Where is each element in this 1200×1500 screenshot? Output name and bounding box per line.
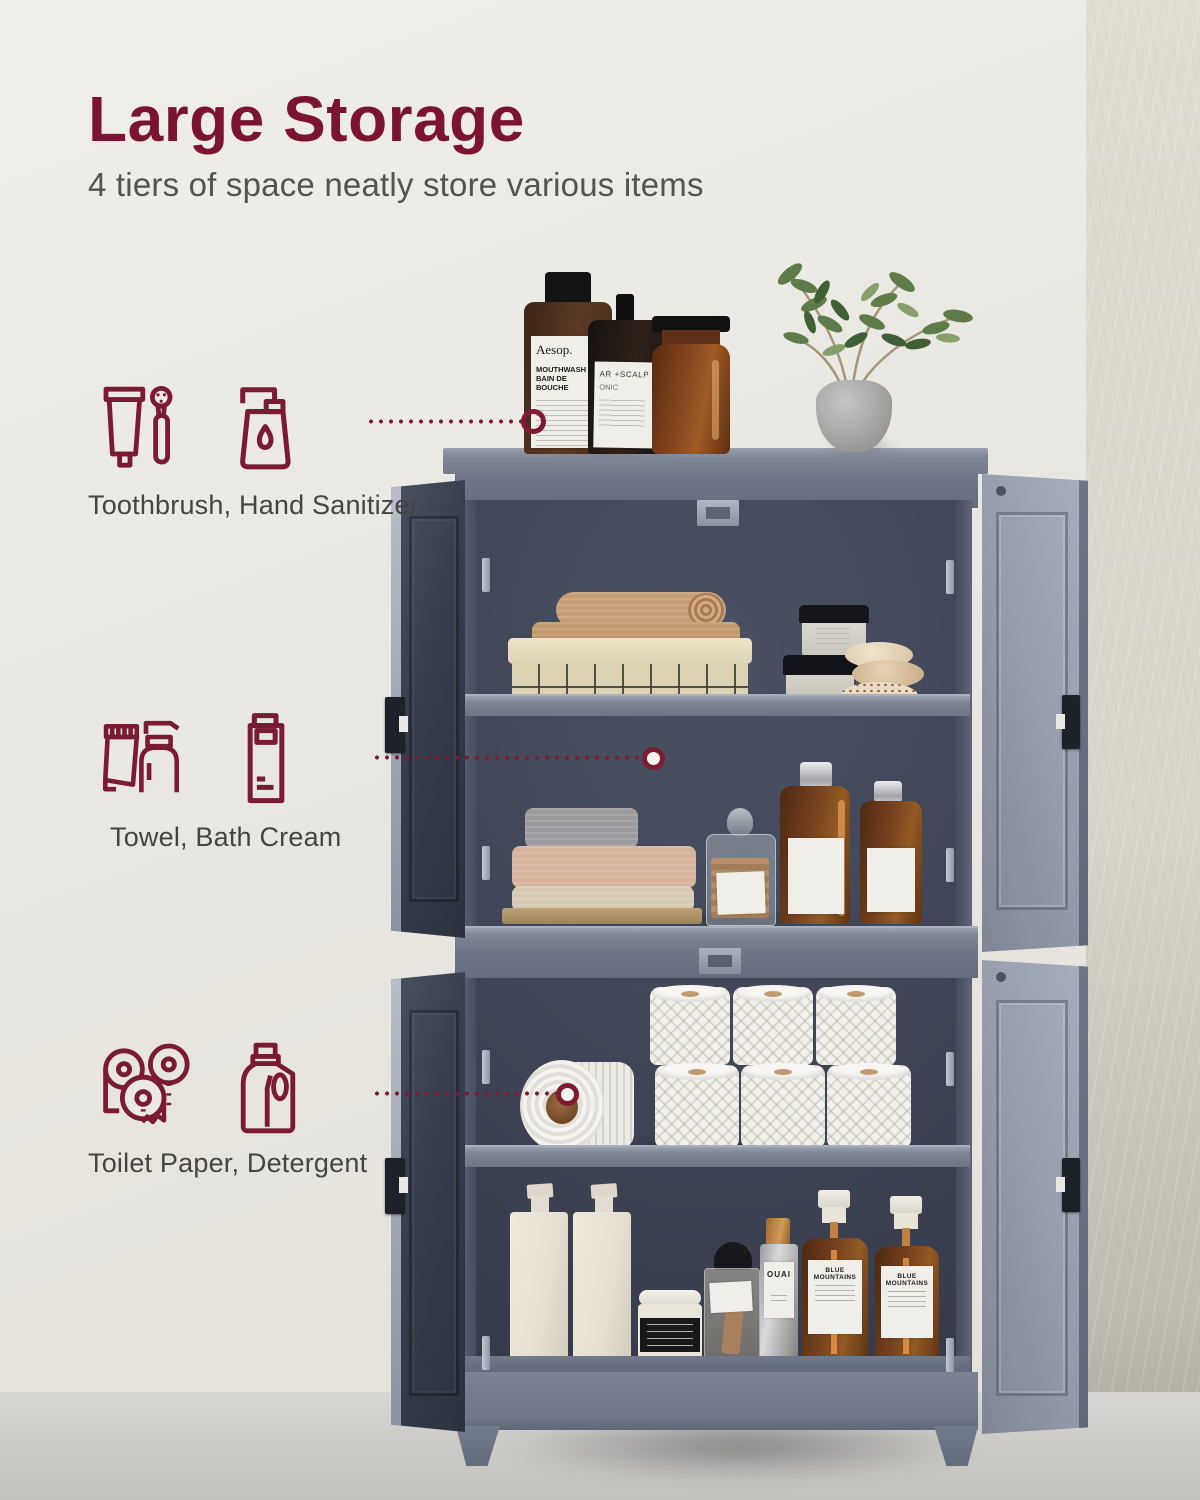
hinge-ll-2 [482,1336,490,1370]
amber-pump-1-collar [822,1207,846,1223]
amber-pump-2-head [890,1196,922,1214]
tonic-smalltext [599,400,646,431]
leader-line-1 [366,419,522,424]
ouai-text: OUAI [764,1270,794,1279]
bath-cream-bottle-icon [246,712,286,806]
product-infographic: OUAI BLUE MOUNTAINS BLUE MOUNTAINS [0,0,1200,1500]
door-catch-middle-slot [708,955,732,967]
folded-towel-pink [512,846,696,888]
amber-bottle-large-label [788,838,844,914]
upper-left-door-latch-clip [399,716,408,732]
leader-marker-2 [642,747,665,770]
upper-right-door-screw [996,486,1006,496]
amber-pump-2-collar [894,1213,918,1229]
blue-mountains-lines-1 [815,1285,855,1303]
white-jar-black-label [640,1318,700,1352]
toilet-roll-1 [650,987,730,1065]
leader-line-2 [372,755,642,760]
hinge-ll-1 [482,1050,490,1084]
door-catch-top-slot [706,507,730,519]
upper-left-door-panel [409,516,459,902]
cream-jar-top-text [816,628,850,644]
hinge-ul-2 [482,846,490,880]
toilet-roll-3 [816,987,896,1065]
hinge-ur-1 [946,560,954,594]
blue-mountains-lines-2 [888,1291,926,1309]
toilet-paper-rolls-icon [100,1040,192,1140]
hinge-lr-1 [946,1052,954,1086]
amber-pump-2-stem [902,1228,910,1248]
ouai-lines [771,1295,787,1303]
right-wall-texture [1086,0,1200,1424]
silver-canister-cap [766,1218,790,1246]
apothecary-highlight [712,360,719,440]
basket-liner-fold [508,638,752,664]
glass-pump-jar-sticker [709,1281,753,1313]
glass-jar-label [716,871,765,915]
amber-bottle-small-label [867,848,915,912]
cream-bottle-1 [510,1212,568,1362]
cabinet-apron [455,1372,978,1430]
blue-mountains-label-2: BLUE MOUNTAINS [881,1266,933,1338]
leader-marker-1 [521,409,546,434]
lower-left-door-panel [409,1010,459,1396]
upper-right-door-edge [1079,474,1088,952]
toothpaste-tube-and-electric-toothbrush-icon [102,384,178,476]
cream-tube-and-lotion-pump-icon [103,712,189,805]
blue-mountains-label-1: BLUE MOUNTAINS [808,1260,862,1334]
hand-sanitizer-icon [231,383,293,477]
lower-left-door-latch-clip [399,1177,408,1193]
page-title: Large Storage [88,82,525,156]
toilet-roll-4 [655,1065,739,1147]
glass-jar-knob [727,808,753,836]
page-subtitle: 4 tiers of space neatly store various it… [88,166,704,204]
hinge-ur-2 [946,848,954,882]
cream-jar-top-lid [799,605,869,623]
tonic-label: AR +SCALP ONIC [593,361,658,448]
leader-line-3 [372,1091,556,1096]
upper-right-door-panel [996,512,1068,910]
blue-mountains-text-2: BLUE MOUNTAINS [881,1273,933,1287]
aesop-cap [545,272,591,306]
hinge-ul-1 [482,558,490,592]
toilet-roll-5 [741,1065,825,1147]
toilet-roll-6 [827,1065,911,1147]
tonic-line2: ONIC [599,383,653,393]
amber-bottle-large-cap [800,762,832,788]
tonic-line1: AR +SCALP [599,370,653,380]
leader-marker-3 [556,1083,579,1106]
toilet-roll-2 [733,987,813,1065]
upper-right-door-latch-clip [1056,714,1065,729]
feature-label-3: Toilet Paper, Detergent [88,1148,367,1179]
upper-shelf [462,694,970,716]
cream-bottle-2 [573,1212,631,1362]
feature-label-1: Toothbrush, Hand Sanitizer [88,490,419,521]
blue-mountains-text-1: BLUE MOUNTAINS [808,1267,862,1281]
lower-right-door-panel [996,1000,1068,1396]
hinge-lr-2 [946,1338,954,1372]
lower-shelf [462,1145,970,1167]
lower-right-door-edge [1079,960,1088,1434]
plant [752,252,1020,402]
ouai-label: OUAI [764,1262,794,1318]
amber-bottle-small-cap [874,781,902,803]
lower-right-door-screw [996,972,1006,982]
lower-right-door-latch-clip [1056,1177,1065,1192]
amber-pump-1-head [818,1190,850,1208]
wooden-tray [502,908,702,924]
detergent-jug-icon [232,1040,304,1140]
feature-label-2: Towel, Bath Cream [110,822,342,853]
folded-towel-gray [525,808,638,848]
